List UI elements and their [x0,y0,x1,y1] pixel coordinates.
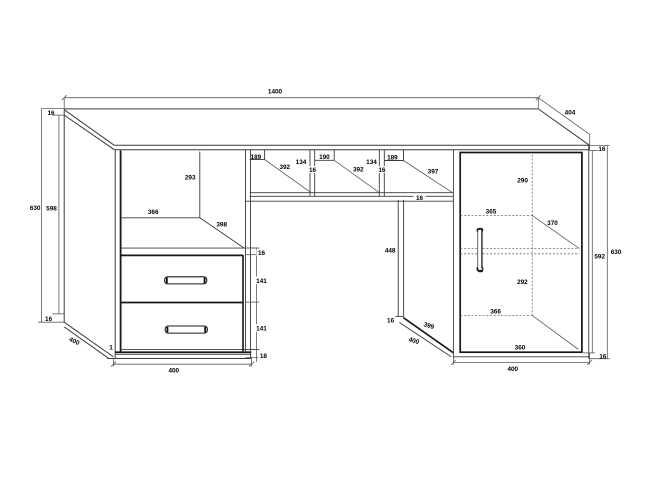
svg-text:366: 366 [490,309,501,316]
svg-text:18: 18 [260,353,268,360]
svg-text:134: 134 [296,159,307,166]
svg-text:16: 16 [45,316,53,323]
svg-text:16: 16 [387,317,395,324]
svg-text:141: 141 [256,278,267,285]
svg-text:392: 392 [353,167,364,174]
svg-text:1400: 1400 [268,89,283,96]
svg-text:598: 598 [46,206,57,213]
svg-text:630: 630 [611,249,622,256]
svg-text:404: 404 [565,109,576,116]
svg-text:398: 398 [216,221,227,228]
svg-text:448: 448 [385,248,396,255]
svg-text:141: 141 [256,326,267,333]
svg-text:189: 189 [251,154,262,161]
svg-text:392: 392 [279,164,290,171]
svg-text:16: 16 [47,110,55,117]
svg-text:292: 292 [517,279,528,286]
svg-text:290: 290 [517,178,528,185]
svg-text:370: 370 [547,220,558,227]
svg-text:16: 16 [378,167,386,174]
svg-text:16: 16 [599,353,607,360]
svg-text:366: 366 [148,209,159,216]
svg-text:293: 293 [185,174,196,181]
svg-text:190: 190 [319,154,330,161]
svg-text:365: 365 [486,209,497,216]
svg-text:592: 592 [594,254,605,261]
svg-text:16: 16 [309,167,317,174]
svg-text:400: 400 [507,366,518,373]
svg-text:16: 16 [598,146,606,153]
svg-text:397: 397 [428,169,439,176]
svg-text:134: 134 [366,159,377,166]
svg-text:630: 630 [30,205,41,212]
svg-text:16: 16 [416,195,424,202]
svg-text:16: 16 [258,250,266,257]
svg-text:400: 400 [168,368,179,375]
svg-text:189: 189 [387,155,398,162]
svg-text:1: 1 [109,344,113,351]
svg-text:360: 360 [515,345,526,352]
